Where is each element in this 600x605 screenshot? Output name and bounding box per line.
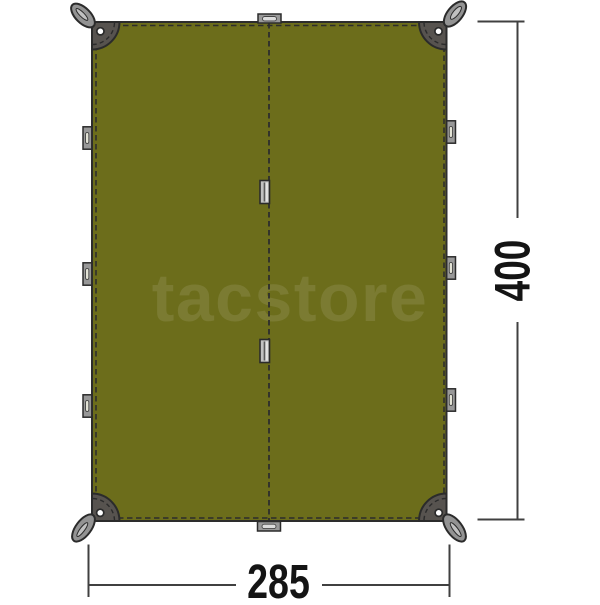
svg-text:400: 400 <box>485 240 541 302</box>
svg-text:285: 285 <box>247 556 310 600</box>
svg-text:tacstore: tacstore <box>152 260 429 336</box>
